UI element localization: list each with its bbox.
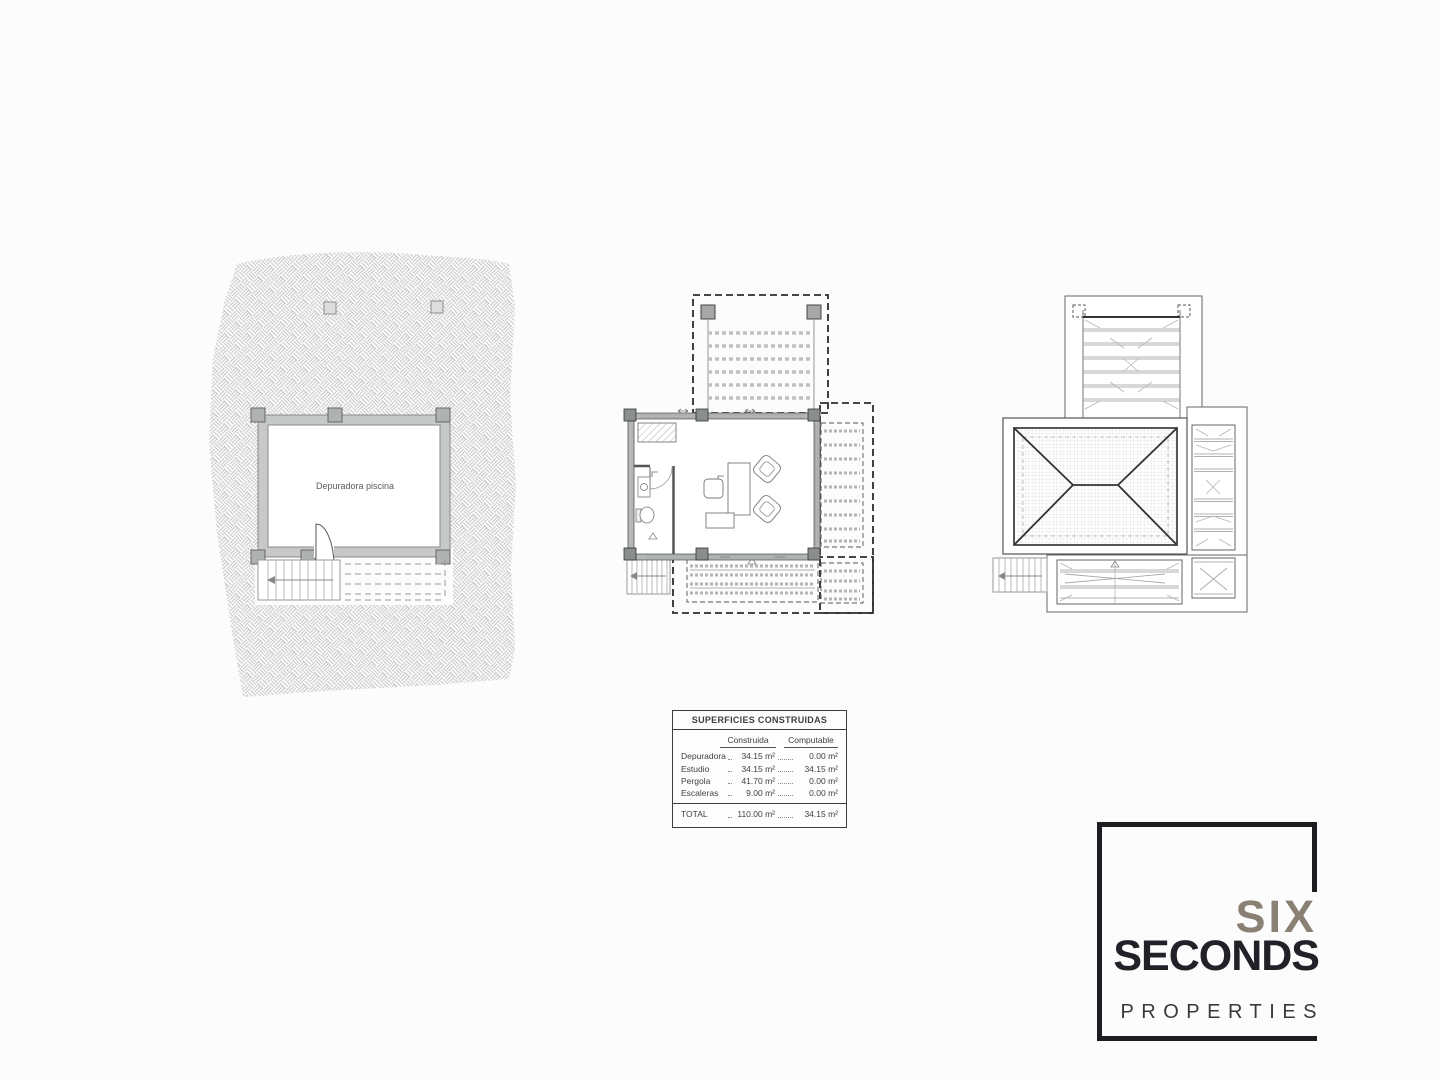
row-value: 0.00 m² xyxy=(796,751,838,762)
desk xyxy=(728,463,750,515)
hip-roof xyxy=(1003,418,1187,554)
logo-frame xyxy=(1097,822,1317,827)
dotted-leader xyxy=(728,783,732,784)
row-value: 0.00 m² xyxy=(796,788,838,799)
dotted-leader xyxy=(778,783,793,784)
stairs xyxy=(258,560,340,600)
dotted-leader xyxy=(778,795,793,796)
surfaces-table: SUPERFICIES CONSTRUIDAS Construida Compu… xyxy=(672,710,847,828)
row-value: 34.15 m² xyxy=(735,764,775,775)
pergola-roof-top xyxy=(1065,296,1202,418)
table-total-row: TOTAL 110.00 m² 34.15 m² xyxy=(673,803,846,820)
logo-frame xyxy=(1312,822,1317,892)
logo-frame xyxy=(1097,822,1102,1041)
pergola-right xyxy=(820,403,873,613)
table-row: Pergola 41.70 m² 0.00 m² xyxy=(673,774,846,786)
office-chair xyxy=(704,479,723,498)
table-row: Escaleras 9.00 m² 0.00 m² xyxy=(673,786,846,798)
table-title: SUPERFICIES CONSTRUIDAS xyxy=(673,711,846,730)
row-value: 34.15 m² xyxy=(735,751,775,762)
table-row: Depuradora 34.15 m² 0.00 m² xyxy=(673,750,846,762)
wardrobe xyxy=(638,423,676,442)
site-plan-drawing: Depuradora piscina xyxy=(195,248,530,703)
row-value: 41.70 m² xyxy=(735,776,775,787)
dotted-leader xyxy=(728,771,732,772)
side-table xyxy=(706,513,734,528)
bottom-terrace-outline xyxy=(1047,555,1247,612)
floor-plan-drawing xyxy=(600,285,890,625)
toilet xyxy=(640,507,654,523)
logo-word-seconds: SECONDS xyxy=(1113,935,1319,978)
room-label: Depuradora piscina xyxy=(316,481,394,491)
row-value: 0.00 m² xyxy=(796,776,838,787)
column-header: Construida xyxy=(720,735,776,748)
dotted-leader xyxy=(778,817,793,818)
dotted-leader xyxy=(728,795,732,796)
dotted-leader xyxy=(778,759,793,760)
post xyxy=(431,301,443,313)
stairs xyxy=(627,558,670,594)
post xyxy=(324,302,336,314)
logo-frame xyxy=(1097,1036,1317,1041)
logo-word-properties: PROPERTIES xyxy=(1120,1002,1324,1022)
column-header: Computable xyxy=(784,735,838,748)
row-label: TOTAL xyxy=(681,809,725,820)
row-value: 110.00 m² xyxy=(735,809,775,820)
row-label: Depuradora xyxy=(681,751,725,762)
dotted-leader xyxy=(728,759,732,760)
row-label: Estudio xyxy=(681,764,725,775)
table-header: Construida Computable xyxy=(673,730,846,750)
roof-plan-drawing xyxy=(990,290,1255,620)
pergola-bottom xyxy=(673,557,873,613)
architectural-plans-page: Depuradora piscina xyxy=(0,0,1440,1080)
row-value: 34.15 m² xyxy=(796,764,838,775)
brand-logo: SIX SECONDS PROPERTIES xyxy=(1097,822,1317,1041)
table-row: Estudio 34.15 m² 34.15 m² xyxy=(673,762,846,774)
pergola-top xyxy=(693,295,828,413)
dotted-leader xyxy=(728,817,732,818)
row-label: Pergola xyxy=(681,776,725,787)
stairs xyxy=(993,558,1047,592)
row-value: 9.00 m² xyxy=(735,788,775,799)
row-label: Escaleras xyxy=(681,788,725,799)
sink xyxy=(638,477,650,497)
row-value: 34.15 m² xyxy=(796,809,838,820)
dotted-leader xyxy=(778,771,793,772)
